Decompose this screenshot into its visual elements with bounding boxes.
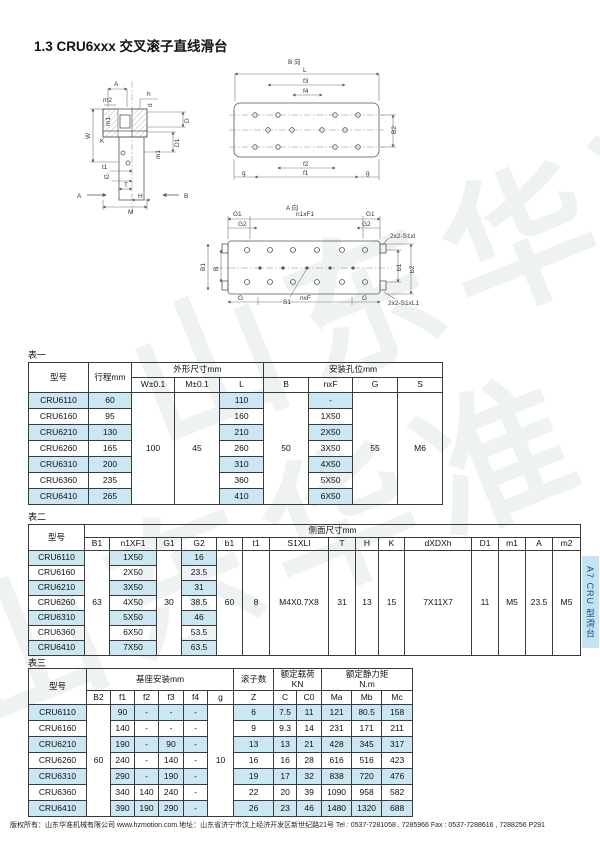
cell: M4X0.7X8 [270,551,329,656]
cell: 14 [297,721,322,737]
cell: - [184,705,208,721]
cell: 50 [264,393,309,505]
cell: 20 [274,785,297,801]
column-header: B2 [87,691,111,705]
cell: 3X50 [309,441,353,457]
dim-label: b2 [409,265,416,273]
cell: 140 [135,785,159,801]
cell: 28 [297,753,322,769]
cell: 7.5 [274,705,297,721]
cell: 9 [234,721,274,737]
column-header: H [356,538,379,551]
column-header: f3 [159,691,184,705]
cell: 16 [182,551,217,566]
column-header: Mc [382,691,413,705]
column-header: n1XF1 [110,538,157,551]
column-group-header: 安装孔位mm [264,363,443,378]
cell: CRU6360 [29,785,87,801]
table-row: CRU6110 63 1X50 30 16 60 8 M4X0.7X8 31 1… [29,551,581,566]
cell: 60 [89,393,132,409]
dim-label: n1xF1 [296,211,314,218]
cell: CRU6410 [29,801,87,817]
cell: 9.3 [274,721,297,737]
cell: 1480 [322,801,352,817]
cell: 19 [234,769,274,785]
dim-label: f2 [303,161,309,168]
cell: 8 [243,551,270,656]
cell: 958 [352,785,382,801]
cell: 7X50 [110,641,157,656]
cell: 31 [182,581,217,596]
cell: 13 [274,737,297,753]
mount-holes [253,113,361,150]
cell: 190 [159,769,184,785]
cell: CRU6360 [29,626,85,641]
dim-label: B2 [391,126,398,134]
group-line2: KN [275,680,320,690]
view-arrow-label: B [184,193,188,200]
column-header: G2 [182,538,217,551]
cell: CRU6210 [29,425,89,441]
cell: 4X50 [309,457,353,473]
dim-label: T [124,182,128,189]
dim-label: f3 [303,78,309,85]
cell: CRU6310 [29,611,85,626]
technical-drawings: A m2 h d D D1 m1 W m1 K t1 t2 T H M A B … [0,55,600,317]
dim-label: 2x2-S1xl [390,233,416,240]
cell: 7X11X7 [405,551,472,656]
cell: 5X50 [309,473,353,489]
dim-label: 2x2-S1xL1 [388,300,419,307]
dim-label: t1 [102,164,108,171]
cell: CRU6160 [29,721,87,737]
column-header: B1 [85,538,110,551]
column-header: t1 [243,538,270,551]
dim-label: G1 [366,211,375,218]
cell: 2X50 [110,566,157,581]
cell: 100 [132,393,175,505]
cell: 26 [234,801,274,817]
dim-label: H [138,193,143,200]
cell: 423 [382,753,413,769]
cell: 95 [89,409,132,425]
dim-label: f4 [303,88,309,95]
cell: 53.5 [182,626,217,641]
column-header: dXDXh [405,538,472,551]
cell: 516 [352,753,382,769]
cell: CRU6110 [29,551,85,566]
cell: 345 [352,737,382,753]
column-header: L [220,378,264,393]
column-header: G1 [157,538,182,551]
cell: - [135,753,159,769]
cell: 1320 [352,801,382,817]
cell: CRU6210 [29,581,85,596]
cell: 15 [379,551,405,656]
cell: 1090 [322,785,352,801]
cell: 165 [89,441,132,457]
cell: - [184,753,208,769]
column-header: C0 [297,691,322,705]
dim-label: m1 [105,117,112,126]
cell: CRU6260 [29,596,85,611]
cell: 310 [220,457,264,473]
cell: 63 [85,551,110,656]
cell: CRU6410 [29,641,85,656]
cell: 317 [382,737,413,753]
cell: 235 [89,473,132,489]
cell: 390 [111,801,135,817]
cell: 3X50 [110,581,157,596]
dimensions-table: 型号 行程mm 外形尺寸mm 安装孔位mm W±0.1 M±0.1 L B nx… [28,362,443,505]
column-header: K [379,538,405,551]
dim-label: B1 [200,263,207,271]
column-header: 型号 [29,363,89,393]
table-row: CRU6110 60 90 - - - 10 6 7.5 11 121 80.5… [29,705,413,721]
cell: 21 [297,737,322,753]
cell: - [184,737,208,753]
column-header: W±0.1 [132,378,175,393]
dim-label: g [242,170,246,177]
catalog-page: 山东华准 山东华准 1.3 CRU6xxx 交叉滚子直线滑台 [0,0,600,848]
cell: 158 [382,705,413,721]
cell: 6 [234,705,274,721]
dim-label: t2 [104,174,110,181]
column-header: f2 [135,691,159,705]
cell: 39 [297,785,322,801]
column-group-header: 外形尺寸mm [132,363,264,378]
cell: 55 [353,393,398,505]
cell: 1X50 [309,409,353,425]
view-title: B 向 [288,57,301,66]
cell: 200 [89,457,132,473]
column-header: Ma [322,691,352,705]
cell: - [309,393,353,409]
cell: - [135,737,159,753]
cell: CRU6260 [29,753,87,769]
cell: CRU6160 [29,409,89,425]
a-view: A 向 [200,203,419,307]
cell: 11 [297,705,322,721]
base-mount-load-table: 型号 基座安装mm 滚子数 额定载荷 KN 额定静力矩 N.m B2 f1 f2… [28,668,413,817]
column-group-header: 侧面尺寸mm [85,525,581,538]
cell: 1X50 [110,551,157,566]
cell: 90 [111,705,135,721]
side-dimensions-table: 型号 侧面尺寸mm B1 n1XF1 G1 G2 b1 t1 S1XLI T H… [28,524,581,656]
cell: 23.5 [182,566,217,581]
dim-label: g [366,170,370,177]
column-header: b1 [217,538,243,551]
cell: CRU6360 [29,473,89,489]
b-view: B 向 L f3 f4 [229,57,398,180]
column-header: S1XLI [270,538,329,551]
cell: 5X50 [110,611,157,626]
column-header: Mb [352,691,382,705]
column-header: m2 [553,538,581,551]
cell: 23 [274,801,297,817]
cell: - [159,721,184,737]
cell: - [184,721,208,737]
cell: 340 [111,785,135,801]
footer-copyright: 版权所有：山东华准机械有限公司 www.hzmotion.com 地址：山东省济… [10,820,598,830]
column-header: D1 [472,538,499,551]
cell: 10 [208,705,234,817]
page-title: 1.3 CRU6xxx 交叉滚子直线滑台 [34,35,228,55]
cell: 190 [135,801,159,817]
cell: 60 [217,551,243,656]
cell: 60 [87,705,111,817]
cell: 171 [352,721,382,737]
cell: 290 [159,801,184,817]
cell: 63.5 [182,641,217,656]
dim-label: L [303,67,307,74]
cell: 410 [220,489,264,505]
dim-label: G1 [233,211,242,218]
dim-label: D [184,118,191,123]
dim-label: B [213,267,220,271]
cell: 13 [356,551,379,656]
dim-label: G2 [362,221,371,228]
table-row: CRU6110 60 100 45 110 50 - 55 M6 [29,393,443,409]
cell: - [135,721,159,737]
column-header: m1 [499,538,526,551]
dim-label: h [147,91,151,98]
cell: 240 [159,785,184,801]
cell: CRU6160 [29,566,85,581]
column-group-header: 额定载荷 KN [274,669,322,691]
cell: 13 [234,737,274,753]
column-group-header: 额定静力矩 N.m [322,669,413,691]
cell: 90 [159,737,184,753]
cell: 190 [111,737,135,753]
view-arrow-label: A [77,193,82,200]
cell: 616 [322,753,352,769]
column-header: T [329,538,356,551]
cell: 140 [111,721,135,737]
cell: 688 [382,801,413,817]
dim-label: b1 [396,263,403,271]
dim-label: S1 [283,299,291,306]
cell: CRU6310 [29,769,87,785]
cell: 210 [220,425,264,441]
dim-label: G2 [238,221,247,228]
dim-label: A [114,81,119,88]
dim-label: M [128,209,133,216]
dim-label: m1 [155,150,162,159]
column-header: A [526,538,553,551]
cell: 16 [274,753,297,769]
column-group-header: 基座安装mm [87,669,234,691]
column-header: S [398,378,443,393]
table2-label: 表二 [28,510,46,523]
dim-label: d [147,103,154,107]
cell: 11 [472,551,499,656]
cell: 4X50 [110,596,157,611]
cell: 16 [234,753,274,769]
cell: CRU6410 [29,489,89,505]
cell: 130 [89,425,132,441]
cell: 240 [111,753,135,769]
column-header: nxF [309,378,353,393]
cell: 360 [220,473,264,489]
cell: 428 [322,737,352,753]
cell: 265 [89,489,132,505]
cell: 6X50 [309,489,353,505]
cell: M6 [398,393,443,505]
dim-label: G [238,295,243,302]
cell: 290 [111,769,135,785]
table1-label: 表一 [28,348,46,361]
cell: 160 [220,409,264,425]
cell: 2X50 [309,425,353,441]
dim-label: m2 [103,97,112,104]
cell: 38.5 [182,596,217,611]
column-header: B [264,378,309,393]
cell: 838 [322,769,352,785]
cell: 720 [352,769,382,785]
column-header: f1 [111,691,135,705]
side-tab-a7-cru: A7 CRU 型滑台 [582,556,599,648]
cell: 231 [322,721,352,737]
cell: 260 [220,441,264,457]
group-line2: N.m [323,680,411,690]
cell: - [184,801,208,817]
cell: - [135,705,159,721]
cell: 45 [175,393,220,505]
cell: - [159,705,184,721]
column-header: g [208,691,234,705]
cell: CRU6310 [29,457,89,473]
cell: CRU6210 [29,737,87,753]
dim-label: G [362,295,367,302]
cell: M5 [553,551,581,656]
dim-label: W [85,132,92,139]
dim-label: f1 [303,170,309,177]
column-group-header: 滚子数 [234,669,274,691]
column-header: 型号 [29,669,87,705]
dim-label: D1 [174,138,181,147]
cell: - [184,785,208,801]
cell: CRU6110 [29,705,87,721]
cell: 30 [157,551,182,656]
cell: 31 [329,551,356,656]
cell: - [135,769,159,785]
cell: CRU6110 [29,393,89,409]
cell: - [184,769,208,785]
section-view: A m2 h d D D1 m1 W m1 K t1 t2 T H M A B [77,81,191,216]
cell: 121 [322,705,352,721]
column-header: f4 [184,691,208,705]
cell: 476 [382,769,413,785]
dim-label: nxF [300,295,311,302]
cell: 32 [297,769,322,785]
cell: 110 [220,393,264,409]
cell: 80.5 [352,705,382,721]
column-header: Z [234,691,274,705]
column-header: 行程mm [89,363,132,393]
cell: M5 [499,551,526,656]
column-header: 型号 [29,525,85,551]
cell: 46 [182,611,217,626]
cell: 46 [297,801,322,817]
cell: 22 [234,785,274,801]
cell: 23.5 [526,551,553,656]
column-header: G [353,378,398,393]
cell: CRU6260 [29,441,89,457]
mount-holes [245,248,368,285]
column-header: M±0.1 [175,378,220,393]
cell: 140 [159,753,184,769]
cell: 17 [274,769,297,785]
dim-label: K [100,138,105,145]
cell: 6X50 [110,626,157,641]
cell: 211 [382,721,413,737]
cell: 582 [382,785,413,801]
column-header: C [274,691,297,705]
